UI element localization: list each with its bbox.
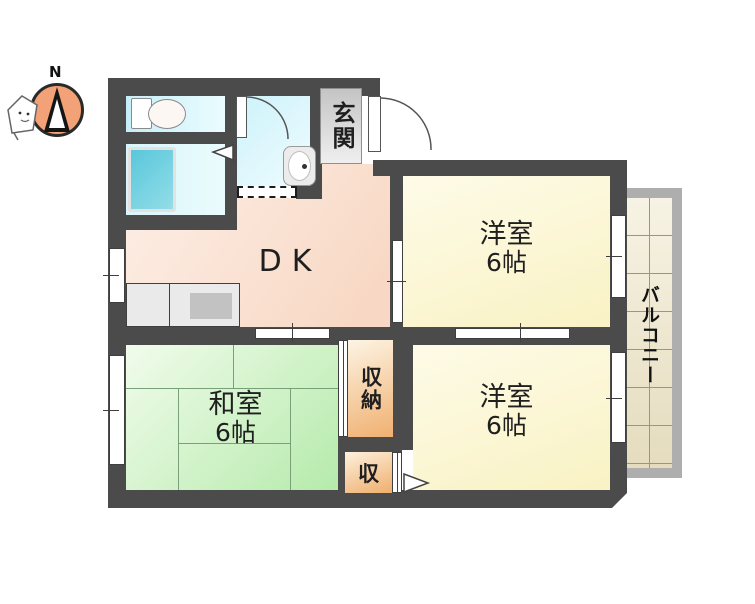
toilet-bowl xyxy=(148,99,186,129)
window-tick xyxy=(103,410,119,411)
counter-divider xyxy=(169,284,170,326)
japanese-room-label: 和室 6帖 xyxy=(126,390,345,446)
slider-tick xyxy=(292,323,293,342)
kitchen-sink xyxy=(190,293,232,319)
floor-plan: 玄関 収納 収 N xyxy=(0,0,755,604)
tatami-line xyxy=(233,345,234,388)
storage-small-box: 収 xyxy=(345,452,392,493)
washroom-door-leaf xyxy=(236,96,247,138)
window-tick xyxy=(103,275,119,276)
dk-label: DK xyxy=(238,246,342,278)
western-room-door-gap xyxy=(402,450,413,490)
western-room-bottom-label: 洋室 6帖 xyxy=(403,383,610,439)
western-room-top-label: 洋室 6帖 xyxy=(403,220,610,276)
compass-north-label: N xyxy=(49,63,62,81)
entrance-door-leaf xyxy=(368,96,381,152)
entrance-label: 玄関 xyxy=(324,101,358,151)
wall-toilet-bath xyxy=(126,132,225,144)
wall-washroom-stub xyxy=(296,186,322,199)
storage-small-label: 収 xyxy=(358,458,379,488)
balcony-label: バルコニー xyxy=(627,250,672,420)
sliding-door-western-western xyxy=(455,328,570,339)
washbasin xyxy=(283,146,316,186)
bathtub xyxy=(128,147,176,212)
wall-top-east xyxy=(373,160,627,176)
storage-large-box: 収納 xyxy=(348,340,393,437)
storage-small-door xyxy=(392,452,402,493)
storage-large-label: 収納 xyxy=(356,366,386,412)
slider-tick xyxy=(520,323,521,342)
kitchen-counter xyxy=(126,283,240,327)
slider-tick xyxy=(387,281,406,282)
entrance-floor-box: 玄関 xyxy=(320,88,362,164)
faucet-dot xyxy=(302,164,307,169)
open-boundary-dashed xyxy=(237,186,297,198)
compass-circle xyxy=(30,83,84,137)
wall-bath-bottom xyxy=(108,215,237,230)
